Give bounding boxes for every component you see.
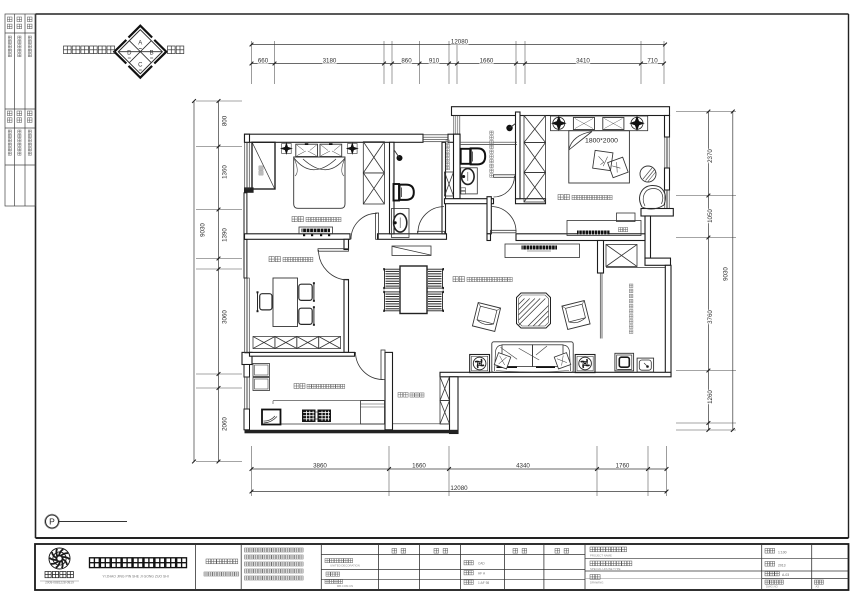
svg-text:DRAWING: DRAWING — [590, 581, 603, 585]
svg-text:A3: A3 — [816, 585, 820, 589]
svg-text:2370: 2370 — [707, 149, 714, 163]
svg-text:MB.COM.CN: MB.COM.CN — [337, 584, 353, 588]
svg-text:A: A — [138, 41, 142, 47]
svg-text:12080: 12080 — [450, 485, 468, 492]
svg-text:B: B — [150, 50, 154, 56]
svg-text:710: 710 — [647, 57, 658, 64]
svg-text:2013: 2013 — [778, 564, 786, 568]
svg-text:1660: 1660 — [480, 57, 494, 64]
svg-text:1360: 1360 — [222, 165, 229, 179]
svg-text:800: 800 — [222, 115, 229, 126]
svg-text:1760: 1760 — [616, 462, 630, 469]
svg-text:DWG.NO: DWG.NO — [766, 585, 779, 589]
svg-text:D: D — [127, 50, 132, 56]
svg-text:SPECIAL HOUSE TYPE: SPECIAL HOUSE TYPE — [590, 567, 621, 571]
svg-text:1050: 1050 — [707, 209, 714, 223]
svg-text:2008-0881228-0819: 2008-0881228-0819 — [45, 581, 74, 585]
svg-text:1260: 1260 — [707, 390, 714, 404]
svg-text:4340: 4340 — [516, 462, 530, 469]
svg-text:910: 910 — [429, 57, 440, 64]
svg-text:YI ZHAO JING PIN SHE JI GONG Z: YI ZHAO JING PIN SHE JI GONG ZUO SHI — [102, 575, 168, 579]
svg-text:9030: 9030 — [200, 223, 207, 237]
svg-text:1:100: 1:100 — [778, 551, 787, 555]
svg-text:PROJECT NAME: PROJECT NAME — [590, 554, 612, 558]
svg-text:CAD: CAD — [478, 562, 485, 566]
svg-text:3410: 3410 — [576, 57, 590, 64]
svg-text:12080: 12080 — [451, 38, 469, 45]
svg-text:3180: 3180 — [323, 57, 337, 64]
svg-text:C: C — [138, 63, 143, 69]
svg-text:3760: 3760 — [707, 310, 714, 324]
svg-text:1390: 1390 — [222, 228, 229, 242]
svg-text:660: 660 — [258, 57, 269, 64]
svg-text:3860: 3860 — [313, 462, 327, 469]
svg-text:1800*2000: 1800*2000 — [585, 138, 618, 145]
svg-text:2060: 2060 — [222, 417, 229, 431]
svg-text:3060: 3060 — [222, 310, 229, 324]
svg-text:1:AF 98: 1:AF 98 — [478, 581, 489, 585]
svg-text:A-03: A-03 — [782, 573, 789, 577]
svg-text:UNITED DECORATION: UNITED DECORATION — [330, 564, 360, 568]
svg-text:9030: 9030 — [723, 267, 730, 281]
svg-text:P: P — [49, 517, 55, 527]
svg-text:HF A: HF A — [478, 572, 486, 576]
svg-text:1660: 1660 — [412, 462, 426, 469]
svg-text:860: 860 — [401, 57, 412, 64]
